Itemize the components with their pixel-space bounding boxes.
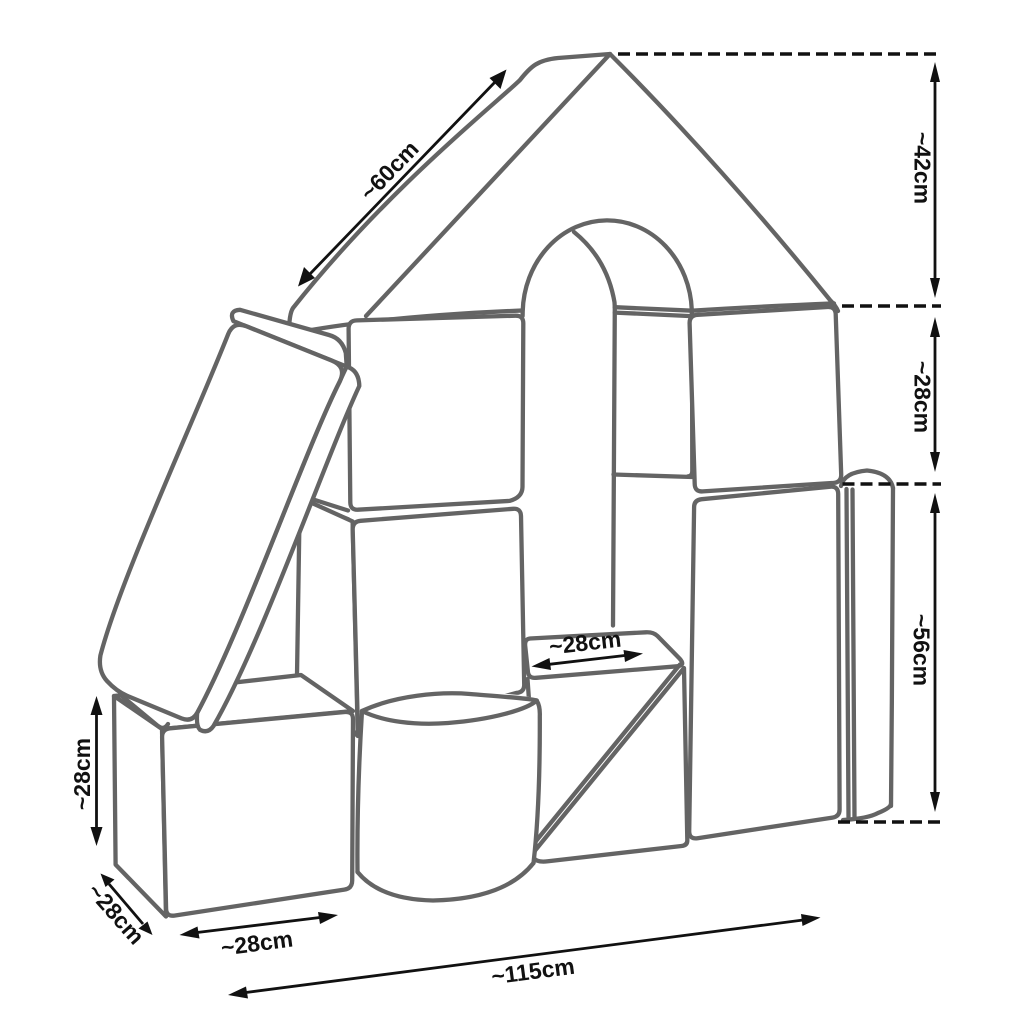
svg-text:~56cm: ~56cm (909, 614, 935, 686)
svg-text:~28cm: ~28cm (910, 361, 936, 433)
svg-text:~42cm: ~42cm (910, 132, 936, 204)
svg-text:~28cm: ~28cm (219, 925, 294, 960)
svg-text:~28cm: ~28cm (69, 738, 95, 810)
